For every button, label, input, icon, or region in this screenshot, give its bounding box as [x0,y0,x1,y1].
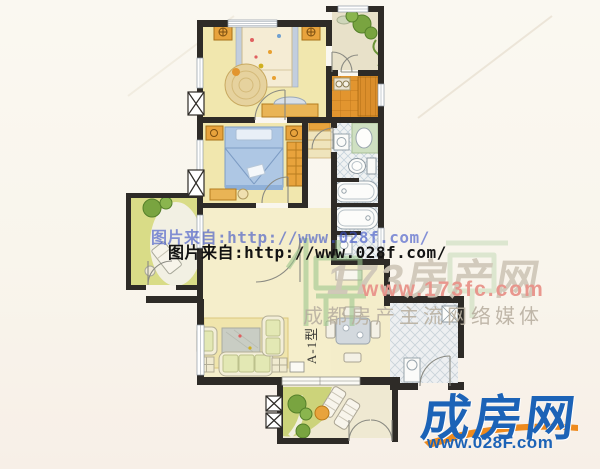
window [197,325,204,375]
column-symbol [188,92,204,115]
column-symbol [266,396,282,411]
round-rug [225,64,267,106]
site-logo-url: www.028F.com [427,433,553,453]
column-symbol [266,413,282,428]
side-table-2 [272,358,287,372]
unit-type-label: A-1型 [288,322,334,368]
washing-machine [334,134,349,150]
bathtub [334,181,378,202]
portal-url-watermark: www.173fc.com [362,278,545,302]
column-symbol [188,170,204,196]
floorplan-scan: 图片来自:http://www.028f.com/ 图片来自:http://ww… [0,0,600,469]
window [197,58,203,88]
sliding-door [282,377,360,385]
bedroom2-desk [210,189,248,200]
portal-tagline-watermark: 成都房产主流网络媒体 [303,300,543,329]
toilet [349,158,377,174]
window [197,140,203,170]
window [228,20,277,27]
sink [356,128,372,148]
patio-table [315,406,329,420]
window [378,84,384,106]
window [338,6,368,12]
